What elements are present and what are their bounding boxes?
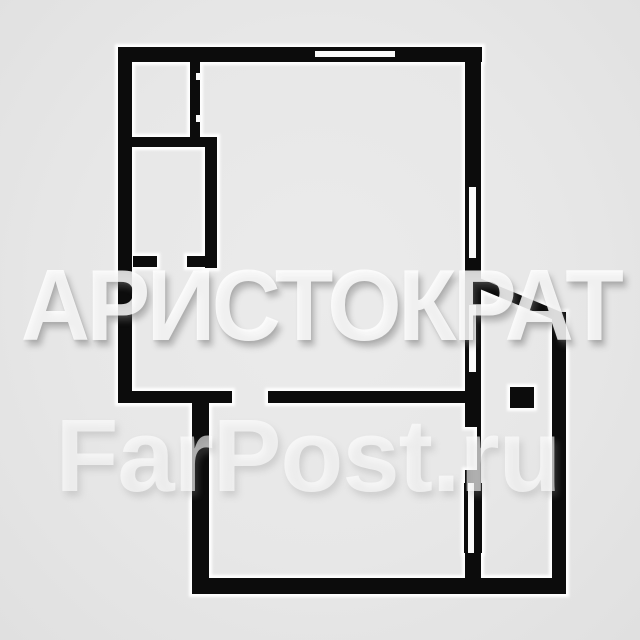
door-jamb-lower [196, 115, 201, 122]
room-b-bottom-wall-right [187, 256, 217, 267]
top-window [315, 51, 395, 57]
room-b-bottom-wall-left [133, 256, 157, 267]
hall-bottom-wall [118, 391, 232, 403]
bottom-wall [192, 578, 562, 594]
right-wall-below-window [465, 553, 481, 583]
room-divider-wall [130, 137, 217, 147]
right-window-2 [469, 305, 476, 372]
right-outer-wall [552, 312, 566, 594]
lower-right-window [468, 483, 474, 553]
room-b-right-wall [205, 138, 217, 268]
wall-halo-layer [115, 44, 569, 597]
left-wall [118, 47, 132, 403]
balcony-diagonal-wall [476, 282, 560, 317]
shaft-column [510, 387, 534, 408]
living-room-bottom-wall [268, 391, 468, 403]
lower-room-left-wall [192, 391, 209, 594]
wall-layer [118, 47, 566, 594]
floor-plan-image: АРИСТОКРАТ FarPost.ru [0, 0, 640, 640]
room-a-right-wall [190, 47, 200, 138]
right-window-1 [469, 187, 476, 258]
floor-plan [0, 0, 640, 640]
top-wall [118, 47, 482, 62]
balcony-door-leaf [477, 427, 481, 470]
door-jamb-upper [196, 73, 201, 80]
window-opening-layer [196, 51, 476, 553]
right-wall-stub [465, 470, 481, 483]
